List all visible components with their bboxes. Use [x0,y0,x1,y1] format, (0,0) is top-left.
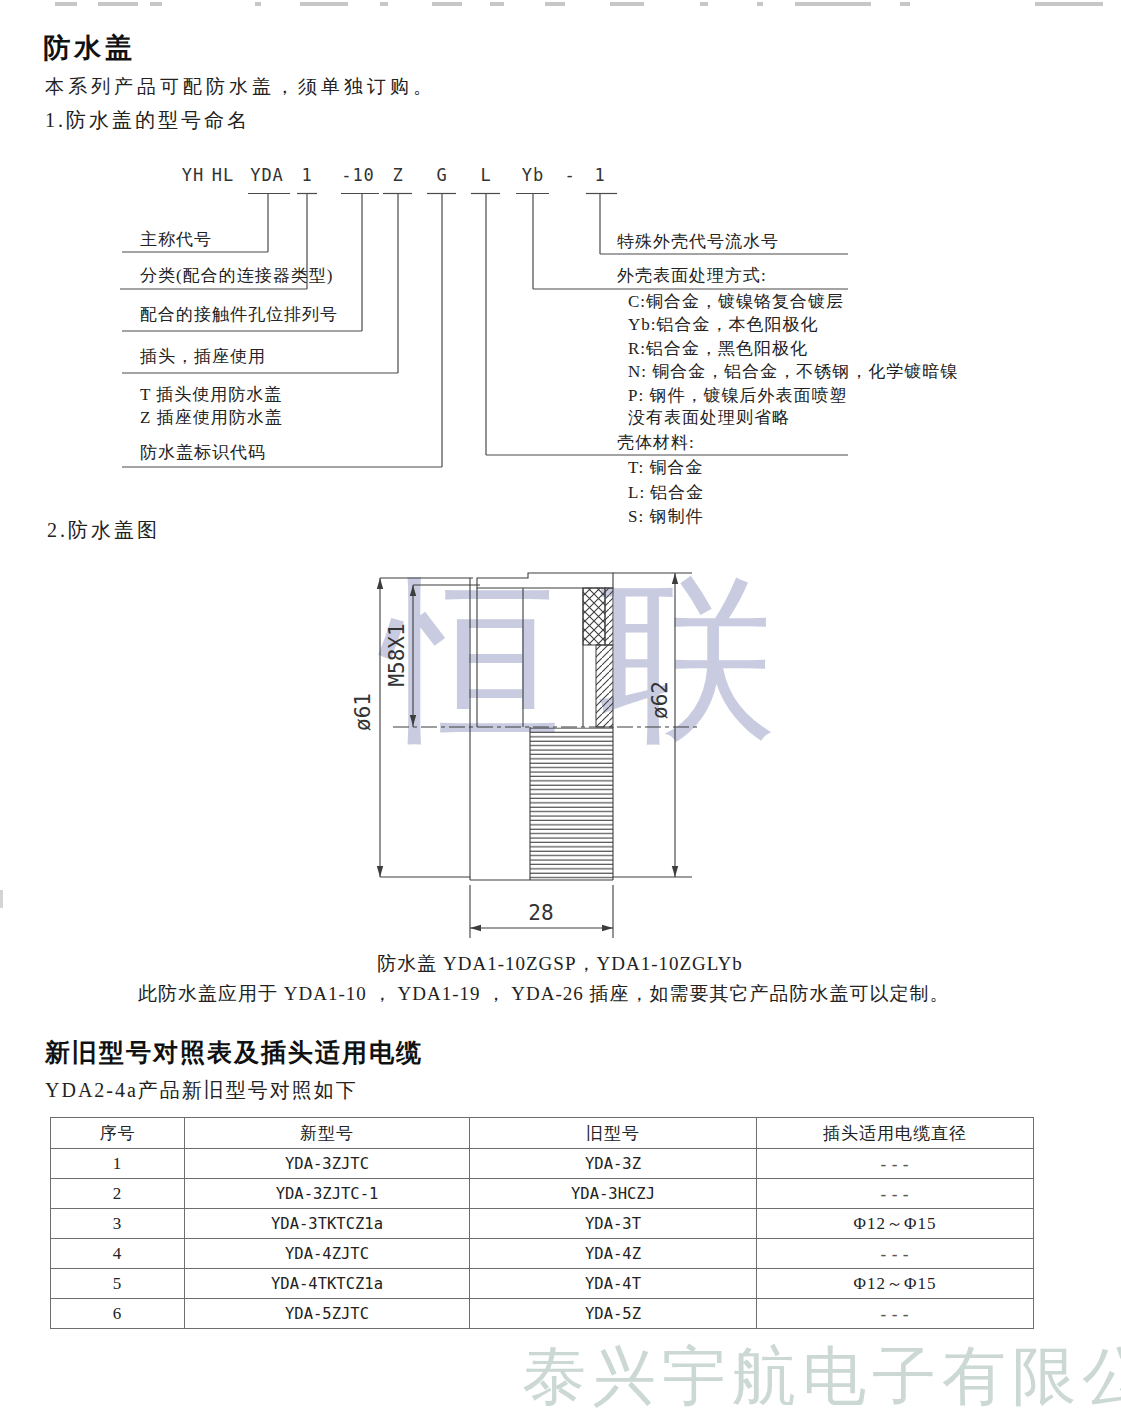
section1-intro: 本系列产品可配防水盖，须单独订购。 [45,74,436,100]
model-comparison-table: 序号 新型号 旧型号 插头适用电缆直径 1 YDA-3ZJTC YDA-3Z -… [50,1117,1034,1329]
table-cell: 3 [51,1209,185,1239]
table-cell: YDA-3T [470,1209,757,1239]
table-cell: YDA-3TKTCZ1a [185,1209,470,1239]
table-header-row: 序号 新型号 旧型号 插头适用电缆直径 [51,1118,1034,1149]
dim-label-left-diameter: ø61 [351,693,375,731]
section1-subheading: 1.防水盖的型号命名 [45,107,250,134]
table-row: 1 YDA-3ZJTC YDA-3Z --- [51,1149,1034,1179]
scan-artifact [490,2,504,6]
scan-artifact [150,2,162,6]
scan-artifact [55,2,77,6]
table-cell: 2 [51,1179,185,1209]
table-cell: YDA-5ZJTC [185,1299,470,1329]
table-cell: Φ12～Φ15 [757,1209,1034,1239]
code-label-left: 主称代号 [140,228,212,251]
code-label-right: N: 铜合金，铝合金，不锈钢，化学镀暗镍 [628,360,958,383]
scan-artifact [380,2,388,6]
drawing-caption: 防水盖 YDA1-10ZGSP，YDA1-10ZGLYb [377,951,742,977]
table-cell: YDA-4Z [470,1239,757,1269]
code-label-left: 配合的接触件孔位排列号 [140,303,338,326]
table-cell: YDA-3ZJTC-1 [185,1179,470,1209]
scan-artifact [1035,2,1103,6]
section3-subheading: YDA2-4a产品新旧型号对照如下 [45,1077,358,1104]
code-label-left: 防水盖标识代码 [140,441,266,464]
col-header-old-model: 旧型号 [470,1118,757,1149]
code-label-right: C:铜合金，镀镍铬复合镀层 [628,290,844,313]
code-label-right: S: 钢制件 [628,505,703,528]
scan-artifact [98,2,138,6]
dim-label-thread: M58X1 [385,623,409,686]
table-cell: Φ12～Φ15 [757,1269,1034,1299]
scan-artifact [300,2,348,6]
scan-artifact [700,2,708,6]
waterproof-cover-drawing: ø61 M58X1 ø62 28 [330,555,730,955]
code-label-right: T: 铜合金 [628,456,704,479]
table-cell: YDA-4T [470,1269,757,1299]
table-cell: 5 [51,1269,185,1299]
code-label-right: R:铝合金，黑色阳极化 [628,337,808,360]
table-row: 4 YDA-4ZJTC YDA-4Z --- [51,1239,1034,1269]
table-cell: --- [757,1149,1034,1179]
scan-artifact [432,2,462,6]
code-label-right: P: 钢件，镀镍后外表面喷塑 [628,384,847,407]
table-cell: YDA-3Z [470,1149,757,1179]
table-row: 3 YDA-3TKTCZ1a YDA-3T Φ12～Φ15 [51,1209,1034,1239]
datasheet-page: 防水盖 本系列产品可配防水盖，须单独订购。 1.防水盖的型号命名 YH HL Y… [0,0,1121,1424]
code-label-right: 特殊外壳代号流水号 [617,230,779,253]
col-header-index: 序号 [51,1118,185,1149]
code-diagram-lines [0,140,1121,540]
col-header-new-model: 新型号 [185,1118,470,1149]
section3-heading: 新旧型号对照表及插头适用电缆 [45,1036,423,1069]
scan-artifact [900,2,910,6]
table-cell: 1 [51,1149,185,1179]
code-label-right: 没有表面处理则省略 [628,406,790,429]
code-label-right: L: 铝合金 [628,481,704,504]
scan-artifact [795,2,871,6]
table-cell: YDA-5Z [470,1299,757,1329]
table-cell: 6 [51,1299,185,1329]
table-row: 6 YDA-5ZJTC YDA-5Z --- [51,1299,1034,1329]
table-cell: --- [757,1299,1034,1329]
scan-artifact [545,2,565,6]
table-cell: YDA-3HCZJ [470,1179,757,1209]
table-cell: YDA-4ZJTC [185,1239,470,1269]
scan-artifact [0,890,3,908]
col-header-cable-diameter: 插头适用电缆直径 [757,1118,1034,1149]
table-cell: 4 [51,1239,185,1269]
code-label-left: Z 插座使用防水盖 [140,406,283,429]
code-label-right: 壳体材料: [617,431,695,454]
table-cell: --- [757,1239,1034,1269]
section2-subheading: 2.防水盖图 [47,517,160,544]
dim-label-width: 28 [528,901,553,925]
section1-heading: 防水盖 [43,30,136,66]
table-cell: --- [757,1179,1034,1209]
company-watermark: 泰兴宇航电子有限公司 [522,1345,1121,1409]
table-row: 5 YDA-4TKTCZ1a YDA-4T Φ12～Φ15 [51,1269,1034,1299]
code-label-left: T 插头使用防水盖 [140,383,282,406]
scan-artifact [255,2,261,6]
scan-artifact [610,2,644,6]
dim-label-right-diameter: ø62 [648,681,672,719]
code-label-right: Yb:铝合金，本色阳极化 [628,313,819,336]
code-label-left: 插头，插座使用 [140,345,266,368]
scan-artifact [757,2,763,6]
table-cell: YDA-4TKTCZ1a [185,1269,470,1299]
table-row: 2 YDA-3ZJTC-1 YDA-3HCZJ --- [51,1179,1034,1209]
drawing-note: 此防水盖应用于 YDA1-10 ， YDA1-19 ， YDA-26 插座，如需… [138,981,950,1007]
table-cell: YDA-3ZJTC [185,1149,470,1179]
code-label-right: 外壳表面处理方式: [617,264,767,287]
code-label-left: 分类(配合的连接器类型) [140,264,333,287]
